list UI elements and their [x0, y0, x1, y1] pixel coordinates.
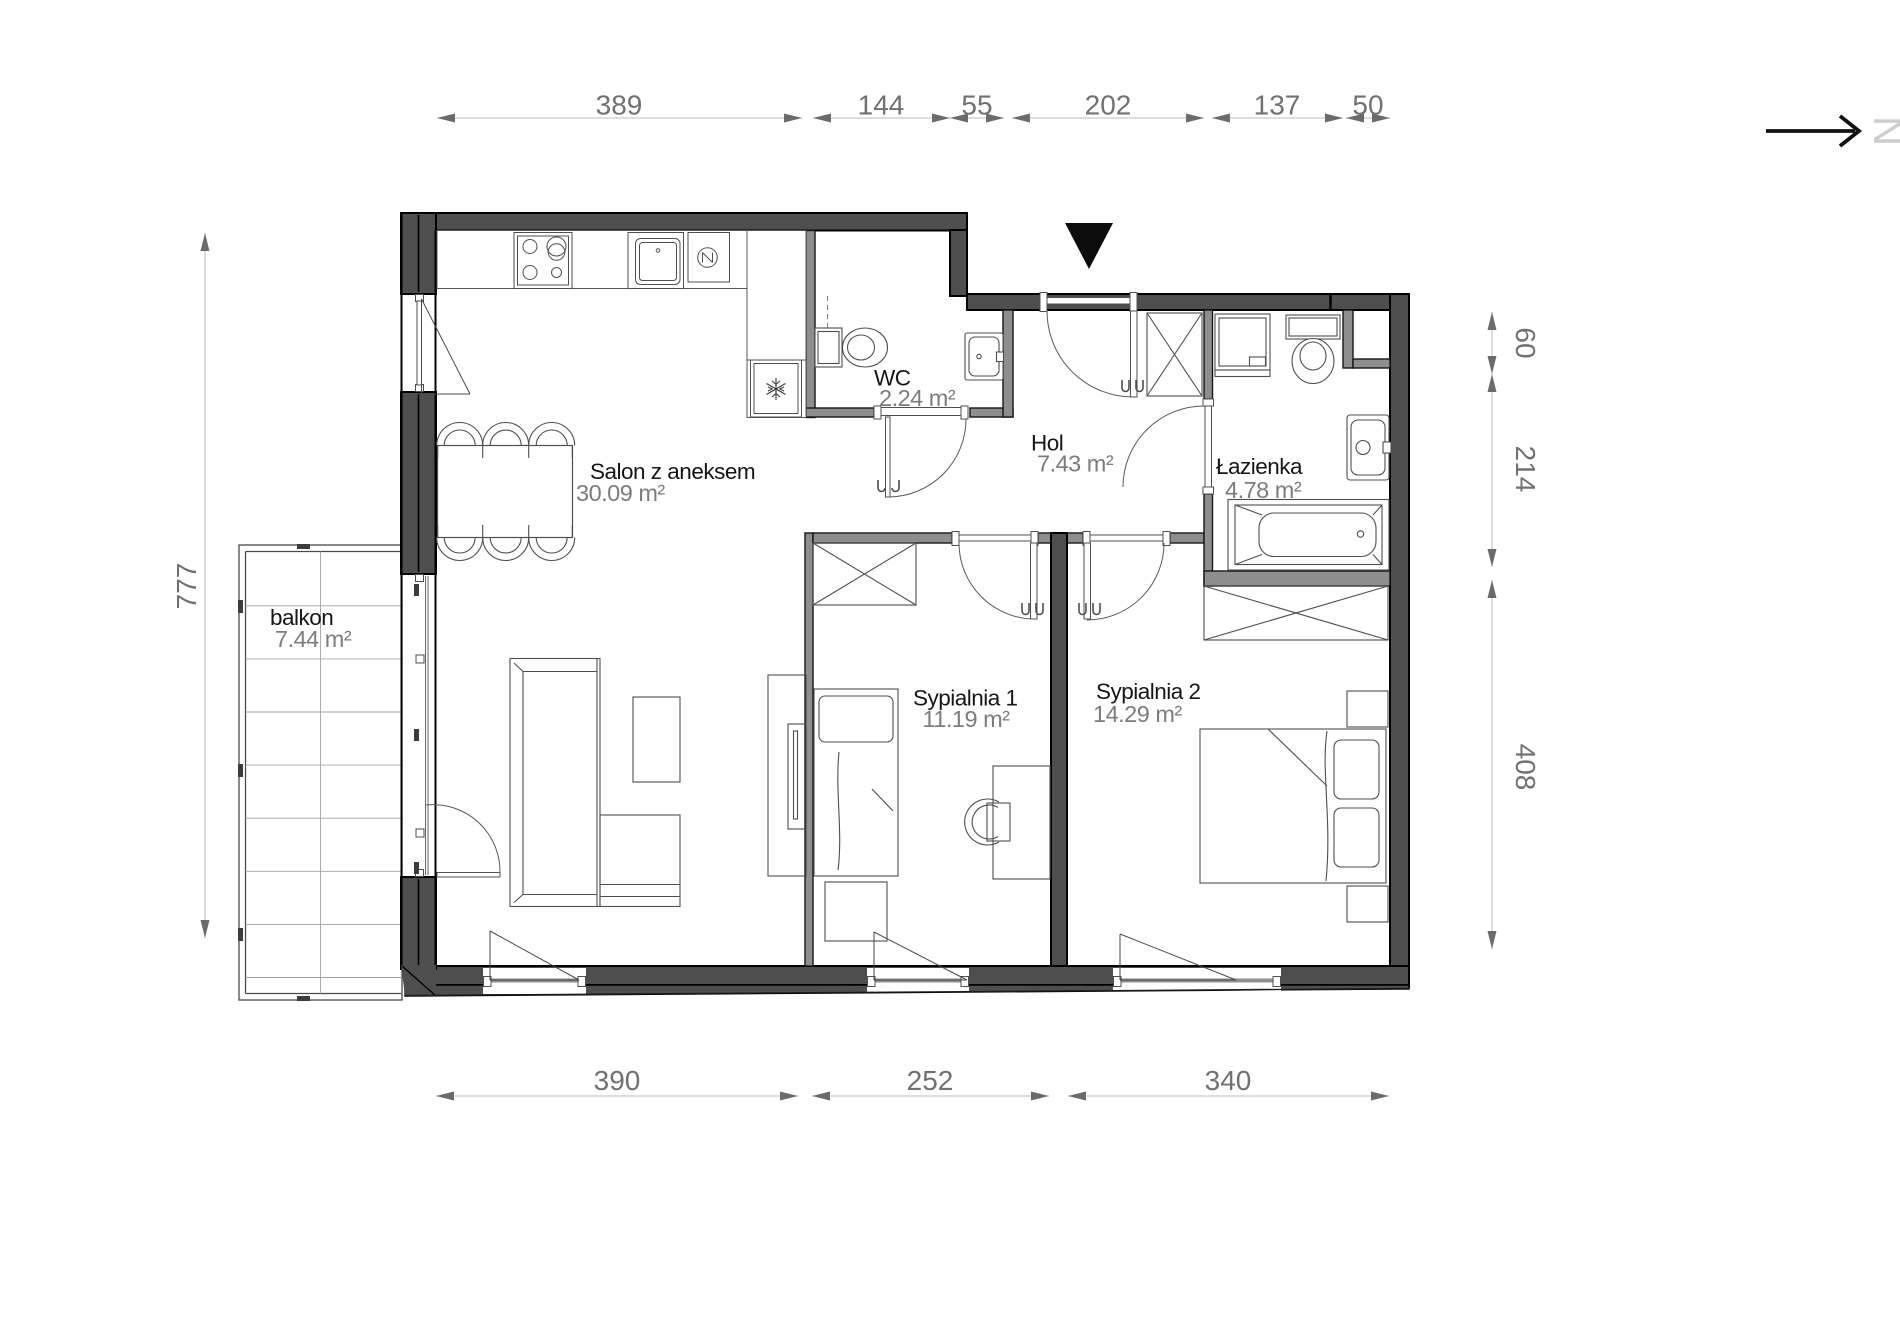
svg-text:252: 252 [907, 1065, 954, 1096]
svg-text:50: 50 [1352, 90, 1383, 121]
svg-text:Łazienka: Łazienka [1216, 454, 1303, 479]
svg-text:408: 408 [1510, 744, 1541, 791]
svg-text:14.29 m²: 14.29 m² [1093, 701, 1182, 727]
svg-text:55: 55 [961, 90, 992, 121]
svg-text:11.19 m²: 11.19 m² [923, 706, 1011, 732]
svg-text:60: 60 [1510, 327, 1541, 358]
svg-text:214: 214 [1510, 446, 1541, 493]
svg-text:4.78 m²: 4.78 m² [1225, 477, 1302, 503]
svg-text:2.24 m²: 2.24 m² [879, 385, 956, 411]
svg-text:137: 137 [1254, 90, 1301, 121]
svg-text:144: 144 [858, 90, 905, 121]
svg-text:30.09 m²: 30.09 m² [576, 480, 665, 506]
svg-text:N: N [1865, 116, 1900, 146]
svg-text:7.44 m²: 7.44 m² [275, 626, 352, 652]
svg-text:340: 340 [1205, 1065, 1252, 1096]
svg-text:389: 389 [596, 90, 643, 121]
svg-text:777: 777 [171, 563, 202, 610]
svg-text:7.43 m²: 7.43 m² [1037, 451, 1114, 477]
svg-text:390: 390 [594, 1065, 641, 1096]
svg-text:202: 202 [1085, 90, 1132, 121]
